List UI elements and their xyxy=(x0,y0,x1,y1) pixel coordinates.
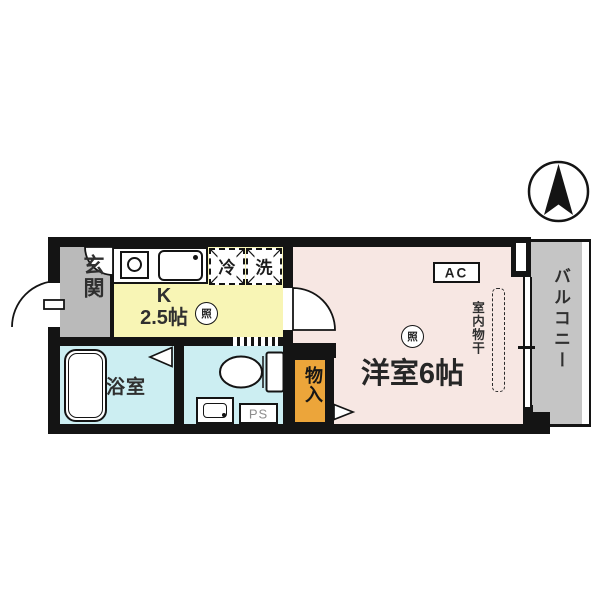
faucet-icon xyxy=(193,255,198,260)
window-handle-tick xyxy=(518,346,535,349)
entrance-label: 玄関 xyxy=(77,254,107,300)
wall-kitchen-room-upper xyxy=(283,247,293,288)
wall-closet-right xyxy=(327,343,334,424)
wall-top xyxy=(48,237,531,247)
balcony-window xyxy=(523,277,532,407)
wall-left-upper xyxy=(48,237,60,283)
washing-machine-space: 洗 xyxy=(246,248,282,285)
wall-corner-slot xyxy=(516,243,526,271)
floor-plan: 冷 洗 PS AC 照 照 xyxy=(0,0,600,599)
pipe-space-box: PS xyxy=(239,403,278,424)
ac-unit-box: AC xyxy=(433,262,480,283)
kitchen-label: K 2.5帖 xyxy=(118,285,210,329)
kitchen-label-bottom: 2.5帖 xyxy=(118,307,210,329)
bathtub-inner-line xyxy=(68,353,103,418)
kitchen-label-top: K xyxy=(118,285,210,307)
wall-balcony-stub xyxy=(523,412,550,434)
wall-bath-washroom xyxy=(174,346,184,424)
ceiling-light-icon: 照 xyxy=(401,325,424,348)
refrigerator-label: 冷 xyxy=(218,253,237,278)
accordion-door xyxy=(230,337,278,346)
ceiling-light-label: 照 xyxy=(407,329,418,344)
indoor-drying-label: 室内物干 xyxy=(468,301,487,355)
drain-icon xyxy=(222,413,226,417)
refrigerator-space: 冷 xyxy=(209,248,245,285)
washing-machine-label: 洗 xyxy=(255,253,274,278)
stove-burner xyxy=(120,251,149,279)
kitchen-sink xyxy=(158,250,203,281)
balcony-label: バルコニー xyxy=(548,267,573,372)
pipe-space-label: PS xyxy=(249,406,268,421)
wall-bottom xyxy=(48,424,533,434)
washbasin xyxy=(196,397,234,424)
compass-north-icon xyxy=(525,158,592,225)
wall-left-lower xyxy=(48,327,60,434)
main-room-label: 洋室6帖 xyxy=(340,350,485,392)
bathroom-label: 浴室 xyxy=(106,372,146,399)
closet-label: 物入 xyxy=(300,366,326,404)
bathtub xyxy=(64,349,107,422)
burner-ring-icon xyxy=(127,257,142,272)
entrance-door-arc xyxy=(12,281,58,327)
ac-unit-label: AC xyxy=(445,265,469,280)
indoor-drying-rail xyxy=(492,288,505,392)
